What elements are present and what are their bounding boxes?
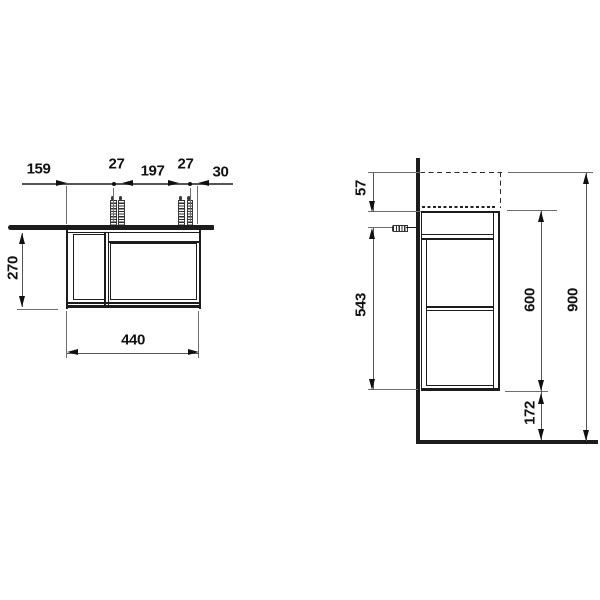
bolt-cap (119, 196, 122, 200)
dim-arrow (198, 180, 209, 186)
extension-line (507, 210, 557, 211)
top-rail-line-lower (421, 238, 495, 240)
extension-line (17, 309, 58, 310)
bottom-inner-line (426, 385, 495, 387)
dim-arrow (369, 379, 375, 390)
floor-line (416, 440, 598, 444)
dim-172-label: 172 (521, 401, 538, 425)
body-height-dimension-line (541, 211, 542, 441)
basin-dashed-right-line (500, 172, 502, 209)
extension-line (508, 172, 593, 173)
basin-dashed-top-line (420, 172, 502, 174)
dim-57-label: 57 (352, 180, 369, 196)
dim-arrow (583, 173, 589, 184)
extension-line (368, 389, 418, 390)
top-rail-line-upper (421, 234, 495, 236)
cabinet-bottom-bar (66, 305, 201, 308)
dim-arrow (538, 380, 544, 391)
dim-197-label: 197 (141, 162, 165, 179)
door-panel-outline (73, 234, 105, 301)
cabinet-top-line-side (421, 211, 500, 213)
divider-line-left (104, 232, 106, 306)
cabinet-left-side-line (66, 230, 68, 309)
dim-600-label: 600 (521, 288, 538, 312)
dim-dot (112, 182, 117, 187)
dim-arrow (538, 211, 544, 222)
fixing-dimension-line (373, 228, 374, 390)
cabinet-top-seal-dotted-line (422, 206, 495, 208)
mounting-screw-shaft (406, 227, 417, 228)
dim-arrow (168, 180, 179, 186)
overall-height-dimension-line (586, 173, 587, 441)
dim-arrow (583, 430, 589, 441)
dim-900-label: 900 (564, 288, 581, 312)
dim-27-left-label: 27 (109, 156, 125, 173)
dim-arrow (19, 296, 25, 307)
extension-line (190, 188, 191, 222)
dim-27-right-label: 27 (178, 156, 194, 173)
cabinet-inner-bottom-line (66, 302, 201, 304)
extension-line (368, 211, 421, 212)
dim-arrow (369, 228, 375, 239)
dim-dot (188, 182, 193, 187)
bolt-cap (179, 196, 182, 200)
dim-159-label: 159 (27, 160, 51, 177)
extension-line (197, 186, 198, 224)
extension-line (66, 186, 67, 224)
dim-arrow (369, 201, 375, 212)
cabinet-bottom-bar-side (421, 388, 500, 391)
wall-line (416, 158, 419, 442)
technical-drawing-canvas: 159 27 197 27 30 270 440 (0, 0, 600, 600)
dim-arrow (67, 349, 78, 355)
dim-543-label: 543 (353, 293, 370, 317)
dim-30-label: 30 (213, 163, 229, 180)
inner-back-line (426, 238, 428, 385)
drawer-front-outline (110, 243, 197, 300)
countertop-line (8, 225, 214, 230)
width-dimension-line (67, 353, 199, 354)
middle-shelf-line-upper (426, 306, 495, 308)
faucet-bolt (118, 200, 125, 226)
extension-line (113, 188, 114, 222)
extension-line (368, 172, 421, 173)
cabinet-right-side-line (199, 230, 201, 309)
dim-270-label: 270 (4, 256, 21, 280)
dim-arrow (188, 349, 199, 355)
dim-arrow (122, 180, 133, 186)
dim-440-label: 440 (121, 331, 145, 348)
faucet-bolt (178, 200, 185, 226)
dim-arrow (538, 429, 544, 440)
middle-shelf-line-lower (426, 310, 495, 312)
cabinet-front-outer-line (498, 211, 500, 391)
dim-arrow (538, 393, 544, 404)
dim-arrow (19, 233, 25, 244)
